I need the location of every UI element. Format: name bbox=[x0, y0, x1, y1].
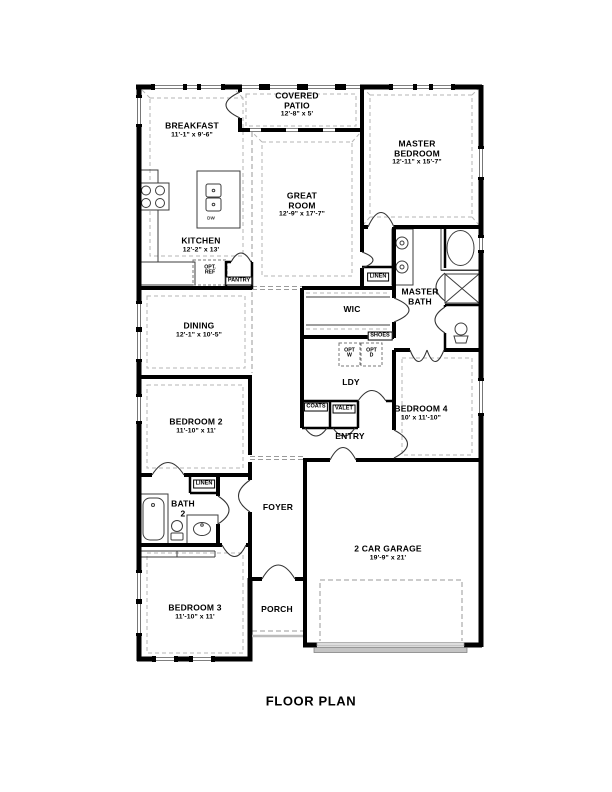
floor-plan-drawing bbox=[0, 0, 612, 792]
garage-entry-door bbox=[330, 448, 356, 461]
master-hall-door bbox=[362, 252, 373, 268]
room-label-laundry: LDY bbox=[342, 378, 360, 388]
front-door bbox=[262, 565, 295, 579]
room-label-porch: PORCH bbox=[261, 605, 293, 615]
room-label-kitchen: KITCHEN12'-2" x 13' bbox=[181, 236, 220, 253]
closet-tag-linen-bath2: LINEN bbox=[193, 480, 215, 489]
master-shower-icon bbox=[445, 274, 479, 303]
bath2-toilet-icon bbox=[171, 521, 183, 541]
floor-plan-page: BREAKFAST11'-1" x 9'-6" COVEREDPATIO12'-… bbox=[0, 0, 612, 792]
closet-tag-linen-master: LINEN bbox=[367, 273, 389, 282]
room-label-entry: ENTRY bbox=[335, 432, 365, 442]
room-label-master-bath: MASTERBATH bbox=[401, 287, 438, 306]
laundry-door bbox=[358, 391, 386, 402]
walls-closets bbox=[190, 227, 481, 493]
room-label-master-bedroom: MASTERBEDROOM12'-11" x 15'-7" bbox=[392, 140, 441, 167]
bedroom3-closet-shelf bbox=[140, 551, 215, 557]
room-label-great-room: GREATROOM12'-9" x 17'-7" bbox=[279, 192, 325, 219]
room-label-bedroom-4: BEDROOM 410' x 11'-10" bbox=[394, 404, 447, 421]
pantry-door bbox=[231, 253, 251, 262]
kitchen-island-icon bbox=[197, 171, 240, 228]
room-label-dining: DINING12'-1" x 10'-5" bbox=[176, 321, 222, 338]
room-label-bedroom-2: BEDROOM 211'-10" x 11' bbox=[169, 417, 222, 434]
room-label-wic: WIC bbox=[343, 305, 360, 315]
bath2-door bbox=[218, 496, 229, 524]
closet-tag-shoes: SHOES bbox=[368, 332, 393, 341]
master-bedroom-door bbox=[368, 213, 394, 228]
plan-title: FLOOR PLAN bbox=[266, 694, 357, 709]
closet-tag-pantry: PANTRY bbox=[225, 277, 252, 286]
master-tub-icon bbox=[441, 227, 481, 271]
bedroom4-double-doors bbox=[410, 350, 444, 362]
appliance-label-dishwasher: DW bbox=[207, 216, 215, 221]
appliance-label-opt-ref: OPT.REF bbox=[204, 266, 216, 277]
room-label-garage: 2 CAR GARAGE19'-9" x 21' bbox=[354, 544, 422, 561]
tray-ceiling-dashes bbox=[142, 88, 479, 653]
closet-tag-coats: COATS bbox=[304, 403, 328, 412]
stove-icon bbox=[138, 183, 169, 210]
walls-interior bbox=[137, 87, 481, 647]
bath2-tub-icon bbox=[139, 494, 168, 544]
room-label-covered-patio: COVEREDPATIO12'-8" x 5' bbox=[275, 92, 318, 119]
bath2-vanity-icon bbox=[187, 515, 218, 544]
patio-door bbox=[226, 92, 240, 118]
walls-exterior bbox=[136, 85, 482, 661]
room-label-bedroom-3: BEDROOM 311'-10" x 11' bbox=[168, 603, 221, 620]
appliance-label-opt-dryer: OPTD bbox=[366, 349, 377, 360]
room-label-foyer: FOYER bbox=[263, 503, 293, 513]
master-toilet-icon bbox=[454, 323, 468, 343]
appliance-label-opt-washer: OPTW bbox=[344, 349, 355, 360]
hall-door bbox=[239, 480, 251, 512]
closet-tag-valet: VALET bbox=[333, 405, 356, 414]
bedroom4-entry-door bbox=[394, 430, 408, 458]
windows bbox=[136, 84, 484, 662]
kitchen-sink-icon bbox=[206, 184, 221, 211]
bedroom2-door bbox=[152, 463, 184, 476]
garage-door bbox=[252, 636, 467, 653]
toilet-room-door bbox=[435, 307, 445, 333]
bedroom3-door bbox=[222, 545, 246, 557]
room-label-breakfast: BREAKFAST11'-1" x 9'-6" bbox=[165, 121, 219, 138]
room-label-bath-2: BATH2 bbox=[171, 499, 195, 518]
